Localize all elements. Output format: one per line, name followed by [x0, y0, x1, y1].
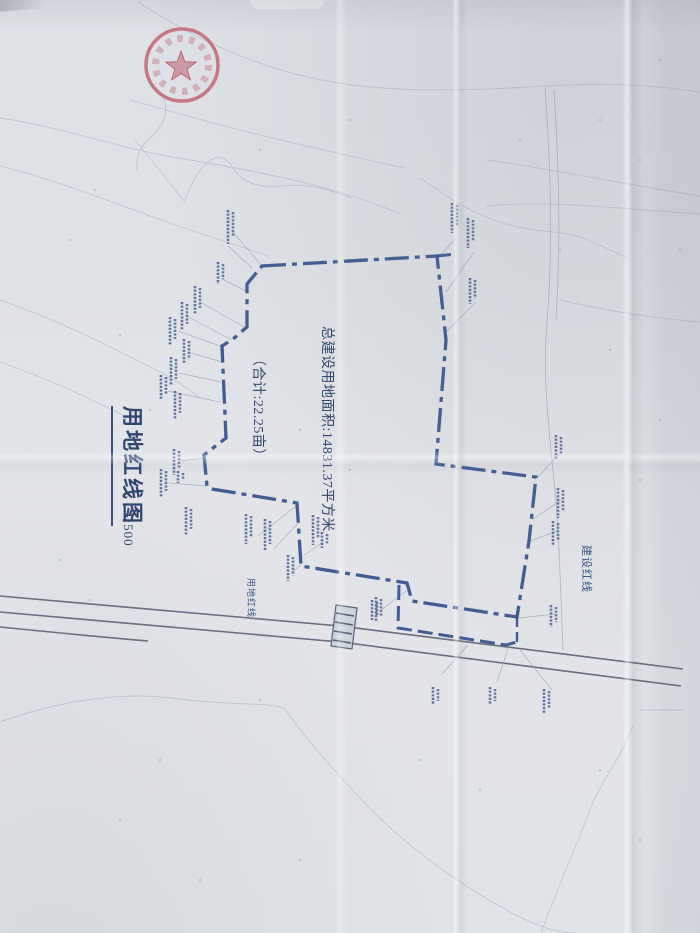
- spot-elevation-mark: [609, 349, 612, 352]
- spot-elevation-mark: [59, 559, 62, 562]
- construction-red-line-label: 建设红线: [579, 545, 595, 593]
- spot-elevation-mark: [149, 409, 152, 412]
- map-scale: 1:500: [120, 512, 136, 547]
- spot-elevation-mark: [159, 759, 162, 762]
- leader-line: [380, 591, 406, 611]
- spot-elevation-mark: [119, 819, 122, 822]
- spot-elevation-mark: [69, 239, 72, 242]
- leader-line: [441, 645, 468, 675]
- spot-elevation-mark: [599, 119, 602, 122]
- red-line-boundary-segment: [437, 254, 456, 256]
- spot-elevation-mark: [519, 139, 522, 142]
- leader-line: [233, 232, 262, 266]
- spot-elevation-mark: [259, 149, 262, 152]
- spot-elevation-mark: [599, 769, 602, 772]
- contour-line: [560, 300, 700, 322]
- area-annotation: 总建设用地面积:14831.37平方米 （合计:22.25亩）: [200, 326, 384, 532]
- contour-line: [488, 160, 700, 196]
- contour-line: [0, 118, 400, 214]
- red-seal: [146, 29, 218, 101]
- paper-sheet: 用地红线图 1:500 总建设用地面积:14831.37平方米 （合计:22.2…: [0, 0, 700, 933]
- spot-elevation-mark: [679, 249, 682, 252]
- boundary-red-line-label: 用地红线: [245, 578, 258, 618]
- contour-line: [0, 696, 576, 933]
- contour-line: [137, 92, 166, 170]
- spot-elevation-mark: [349, 119, 352, 122]
- spot-elevation-mark: [94, 189, 97, 192]
- leader-line: [200, 302, 246, 328]
- village-road-line: [554, 90, 559, 320]
- seal-star-icon: [166, 51, 196, 80]
- spot-elevation-mark: [419, 759, 422, 762]
- paper-edge-notch: [250, 0, 324, 9]
- spot-elevation-mark: [299, 859, 302, 862]
- spot-elevation-mark: [119, 334, 122, 337]
- culvert-symbol: [331, 605, 357, 649]
- spot-elevation-mark: [199, 879, 202, 882]
- contour-line: [185, 158, 352, 200]
- leader-line: [446, 302, 476, 332]
- spot-elevation-mark: [639, 479, 642, 482]
- contour-line: [130, 100, 405, 168]
- spot-elevation-mark: [639, 839, 642, 842]
- spot-elevation-mark: [259, 699, 262, 702]
- spot-elevation-mark: [479, 789, 482, 792]
- area-text-line1: 总建设用地面积:14831.37平方米: [315, 326, 338, 532]
- contour-line: [138, 2, 700, 92]
- road-line: [0, 627, 148, 641]
- spot-elevation-mark: [659, 419, 662, 422]
- contour-line: [135, 140, 185, 202]
- contour-line: [486, 204, 700, 214]
- leader-line: [520, 650, 552, 690]
- spot-elevation-mark: [89, 599, 92, 602]
- spot-elevation-mark: [639, 159, 642, 162]
- map-title: 用地红线图: [111, 406, 148, 526]
- leader-line: [222, 279, 248, 292]
- contour-line: [541, 710, 684, 933]
- spot-elevation-mark: [659, 59, 662, 62]
- area-text-line2: （合计:22.25亩）: [246, 326, 269, 532]
- spot-elevation-mark: [559, 249, 562, 252]
